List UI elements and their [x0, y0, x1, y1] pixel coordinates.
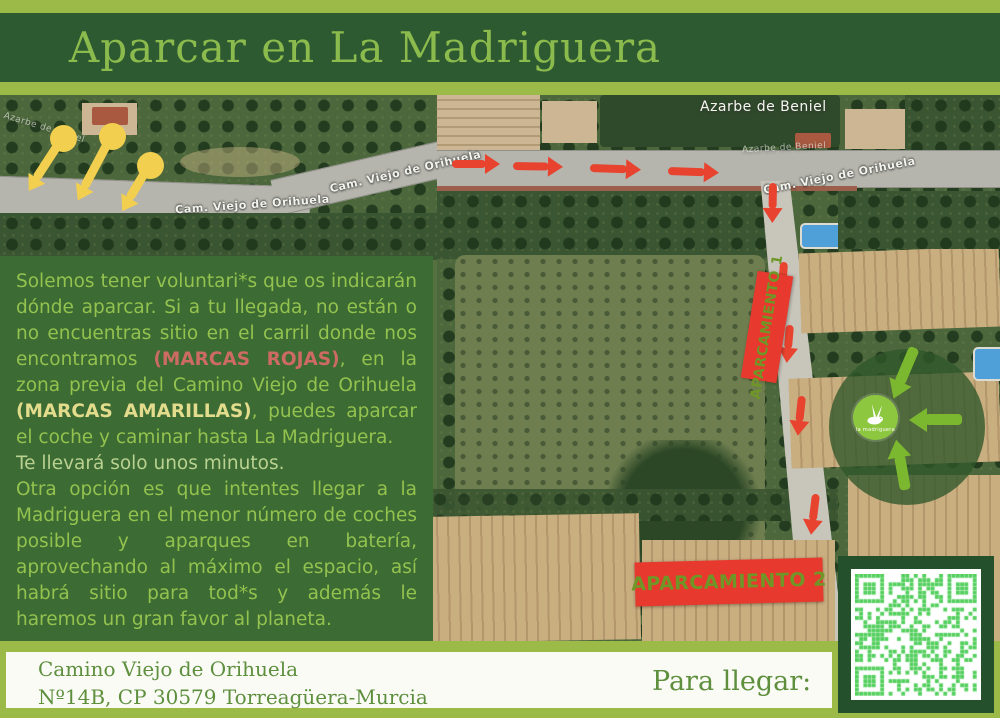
right-map-buildings-top	[437, 95, 540, 153]
red-arrow-down-4	[798, 396, 802, 433]
address-line-1: Camino Viejo de Orihuela	[38, 655, 428, 683]
flyer-page: Aparcar en La Madriguera	[0, 0, 1000, 718]
red-arrow-2	[513, 166, 560, 167]
orchard-row-mid	[437, 191, 767, 259]
qr-code-box	[838, 556, 994, 713]
red-arrow-down-5	[811, 494, 816, 532]
azarbe-house	[845, 109, 907, 149]
water-label-main: Azarbe de Beniel	[700, 99, 827, 115]
paragraph-1: Solemos tener voluntari*s que os indicar…	[16, 269, 417, 451]
minutes-line: Te llevará solo unos minutos.	[16, 451, 417, 477]
address-line-2: Nº14B, CP 30579 Torreagüera-Murcia	[38, 683, 428, 711]
red-arrow-3	[590, 168, 638, 170]
right-map-trees-topright	[905, 95, 1000, 153]
left-map-sand-patch	[180, 147, 300, 177]
logo-text: la madriguera	[856, 427, 895, 433]
red-arrow-down-3	[787, 325, 790, 360]
marcas-amarillas-highlight: (MARCAS AMARILLAS)	[16, 401, 252, 422]
address-block: Camino Viejo de Orihuela Nº14B, CP 30579…	[38, 655, 428, 711]
pool-2	[973, 347, 1000, 381]
info-panel: Solemos tener voluntari*s que os indicar…	[0, 256, 433, 641]
trees-right-of-lane	[838, 191, 1000, 249]
para-llegar-label: Para llegar:	[652, 666, 811, 697]
red-arrow-4	[668, 171, 716, 173]
shed-bottom-left	[427, 513, 641, 641]
rabbit-icon	[863, 403, 889, 429]
left-map-trees-below-road	[0, 213, 437, 260]
la-madriguera-logo: la madriguera	[853, 395, 898, 440]
header-bar: Aparcar en La Madriguera	[0, 13, 1000, 82]
warehouse-1	[799, 247, 1000, 334]
paragraph-2: Otra opción es que intentes llegar a la …	[16, 477, 417, 633]
green-arrow-bottom	[897, 443, 905, 490]
page-title: Aparcar en La Madriguera	[0, 23, 730, 72]
qr-code	[855, 574, 977, 696]
right-map-wall	[542, 101, 597, 143]
red-arrow-down-1	[772, 183, 773, 220]
marcas-rojas-highlight: (MARCAS ROJAS)	[153, 349, 339, 370]
title-wrap: Aparcar en La Madriguera	[0, 23, 730, 72]
parking-2-label: APARCAMIENTO 2	[634, 558, 823, 607]
